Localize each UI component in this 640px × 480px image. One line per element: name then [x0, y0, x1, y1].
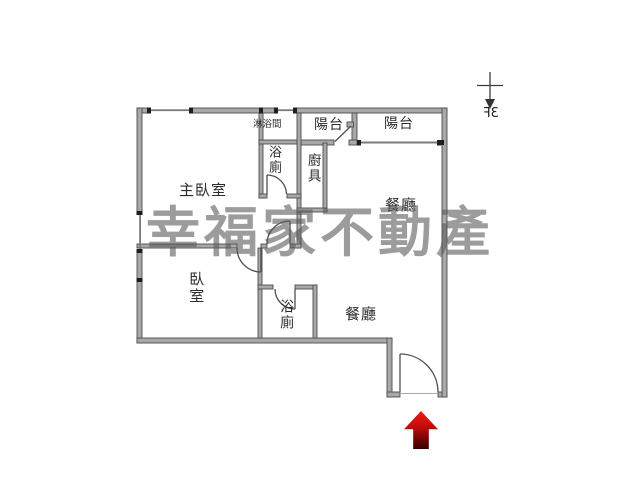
tick-11: [440, 140, 444, 145]
wall-left-upper: [137, 108, 142, 214]
room-label-balcony-left: 陽台: [314, 118, 344, 133]
wall-bathtop-bottom-a: [259, 194, 267, 198]
wall-top-a: [192, 108, 276, 113]
window-top-left: [150, 109, 192, 111]
tick-1: [147, 108, 151, 114]
room-label-bath-bottom: 浴廁: [278, 299, 293, 331]
tick-7: [137, 249, 143, 253]
wall-top-b: [295, 108, 447, 113]
room-label-master-bedroom: 主臥室: [179, 182, 227, 198]
tick-3: [274, 108, 278, 114]
orientation-cross-icon: [477, 72, 503, 100]
door-bathtop-arc: [267, 175, 287, 194]
tick-9: [357, 140, 361, 146]
tick-5: [259, 108, 263, 114]
wall-bathbot-right: [313, 285, 317, 338]
door-entrance-arc: [400, 354, 438, 392]
wall-shower-bottom: [259, 140, 301, 144]
wall-bottom-main: [137, 338, 392, 343]
room-label-bedroom: 臥室: [188, 271, 204, 305]
wall-step: [387, 338, 392, 397]
wall-entry-stub-left: [387, 392, 400, 397]
tick-2: [189, 108, 193, 114]
watermark-text: 幸福家不動產: [146, 206, 494, 260]
room-label-bath-top: 浴廁: [266, 145, 280, 175]
floor-plan-canvas: 淋浴間 浴廁 廚具 陽台 陽台 主臥室 餐廳 臥室 浴廁 餐廳 3F 幸福家不動…: [0, 0, 640, 480]
room-label-dining-lower: 餐廳: [345, 306, 377, 322]
wall-bathbot-top-a: [258, 285, 273, 289]
window-left-wall: [139, 214, 141, 250]
wall-bathtop-bottom-b: [287, 194, 301, 198]
room-label-balcony-right: 陽台: [384, 117, 414, 132]
room-label-kitchen: 廚具: [305, 153, 320, 184]
floor-indicator-label: 3F: [478, 106, 504, 121]
wall-left-lower: [137, 250, 142, 343]
wall-balcony-bottom: [297, 140, 334, 145]
room-label-shower: 淋浴間: [253, 120, 282, 130]
window-balcony-slider: [360, 142, 438, 144]
tick-8: [137, 278, 143, 282]
window-top-shower: [276, 109, 295, 111]
wall-balcony-divider-foot: [349, 140, 357, 145]
tick-4: [293, 108, 297, 114]
tick-6: [137, 211, 143, 215]
